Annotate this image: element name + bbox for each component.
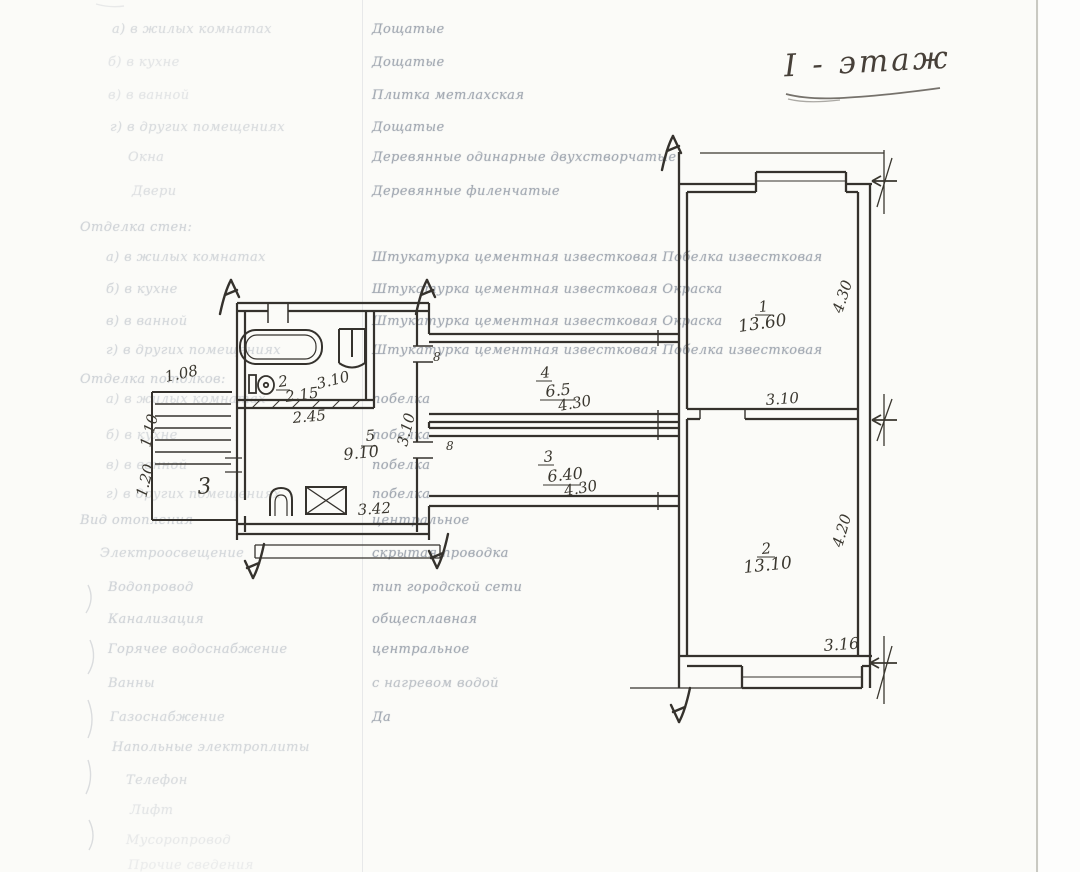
right-dimension-marks bbox=[700, 150, 897, 704]
page-margin bbox=[1039, 0, 1080, 872]
stairs-dim1-label: 1.10 bbox=[136, 412, 162, 449]
room1-width-label: 3.10 bbox=[765, 389, 800, 409]
page-edge-line bbox=[1036, 0, 1038, 872]
stove-icon bbox=[306, 487, 346, 514]
bath-width-label: 2.45 bbox=[291, 406, 327, 427]
room1-area-label: 13.60 bbox=[737, 310, 788, 337]
scanned-tech-passport-page: а) в жилых комнатахДощатые б) в кухнеДощ… bbox=[0, 0, 1080, 872]
kitchen-area-label: 9.10 bbox=[342, 441, 379, 464]
kitchen-width-label: 3.42 bbox=[357, 499, 392, 519]
sink-icon bbox=[339, 329, 365, 368]
hall3-room-number: 3 bbox=[543, 447, 554, 466]
room1-depth-label: 4.30 bbox=[828, 277, 856, 316]
door-width-mark: 8 bbox=[446, 439, 454, 453]
floor-plan-drawing: 1.08 1.10 1.20 3 2 2.15 3.10 2.45 5 9.10… bbox=[0, 0, 1080, 872]
stairs-dim2-label: 1.20 bbox=[132, 462, 158, 499]
stairs-width-label: 1.08 bbox=[163, 361, 199, 386]
staircase bbox=[152, 392, 242, 520]
hall4-room-number: 4 bbox=[539, 363, 551, 382]
bathtub-icon bbox=[240, 330, 322, 364]
room2-width-label: 3.16 bbox=[823, 634, 860, 655]
scan-margin-marks bbox=[86, 4, 124, 850]
wc-area-label: 2.15 bbox=[283, 383, 320, 406]
room2-area-label: 13.10 bbox=[742, 553, 793, 578]
title-underline bbox=[786, 88, 940, 102]
door-width-mark: 8 bbox=[433, 350, 441, 364]
kitchen-sink-icon bbox=[270, 488, 292, 516]
stairs-room-number: 3 bbox=[196, 474, 212, 500]
toilet-icon bbox=[249, 375, 274, 394]
wc-dim-label: 3.10 bbox=[315, 367, 352, 393]
right-block-walls bbox=[630, 152, 872, 688]
room2-depth-label: 4.20 bbox=[828, 512, 855, 550]
